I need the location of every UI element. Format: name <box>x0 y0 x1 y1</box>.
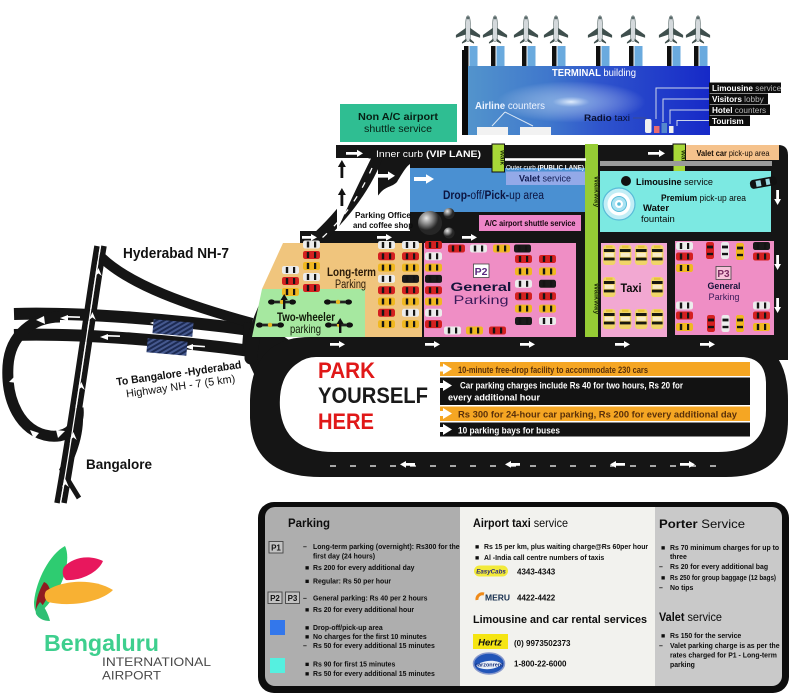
svg-text:A/C airport shuttle service: A/C airport shuttle service <box>485 219 576 228</box>
svg-text:No charges for the first 10 mi: No charges for the first 10 minutes <box>313 634 427 641</box>
svg-text:–: – <box>303 643 307 650</box>
svg-text:Drop-off/pick-up area: Drop-off/pick-up area <box>313 625 383 632</box>
svg-text:Walkway: Walkway <box>593 283 602 315</box>
svg-text:■: ■ <box>661 575 665 582</box>
svg-text:parking: parking <box>290 322 321 336</box>
svg-text:Long-term parking (overnight):: Long-term parking (overnight): Rs300 for… <box>313 544 460 551</box>
svg-text:rates charged for P1 - Long-te: rates charged for P1 - Long-term <box>670 653 777 660</box>
svg-text:MERU: MERU <box>485 593 510 603</box>
svg-text:Limousine and car rental servi: Limousine and car rental services <box>473 614 647 626</box>
svg-text:–: – <box>659 585 663 592</box>
svg-text:10-minute free-drop facility t: 10-minute free-drop facility to accommod… <box>458 365 648 376</box>
svg-text:HERE: HERE <box>318 409 374 434</box>
svg-text:(0) 9973502373: (0) 9973502373 <box>514 639 571 648</box>
svg-text:P1: P1 <box>271 544 281 553</box>
svg-text:■: ■ <box>661 545 665 552</box>
svg-text:Valet service: Valet service <box>519 174 571 184</box>
svg-text:–: – <box>659 643 663 650</box>
svg-text:carzonrent: carzonrent <box>475 663 503 669</box>
svg-text:4422-4422: 4422-4422 <box>517 594 556 603</box>
svg-text:1-800-22-6000: 1-800-22-6000 <box>514 660 567 669</box>
svg-text:P3: P3 <box>717 269 730 280</box>
svg-text:P3: P3 <box>288 594 298 603</box>
svg-text:parking: parking <box>670 662 695 669</box>
svg-text:■: ■ <box>305 565 309 572</box>
svg-text:fountain: fountain <box>641 214 675 225</box>
svg-text:P2: P2 <box>270 594 280 603</box>
svg-text:Outer curb (PUBLIC LANE): Outer curb (PUBLIC LANE) <box>506 165 584 172</box>
svg-text:YOURSELF: YOURSELF <box>318 383 428 408</box>
svg-text:Parking: Parking <box>709 292 740 303</box>
svg-text:Drop-off/Pick-up area: Drop-off/Pick-up area <box>443 190 545 202</box>
svg-text:■: ■ <box>475 544 479 551</box>
svg-text:–: – <box>303 544 307 551</box>
svg-text:Porter Service: Porter Service <box>659 517 745 531</box>
svg-text:Hyderabad NH-7: Hyderabad NH-7 <box>123 246 229 262</box>
svg-text:Limousine service: Limousine service <box>712 84 782 93</box>
svg-text:4343-4343: 4343-4343 <box>517 568 556 577</box>
svg-text:Hotel counters: Hotel counters <box>712 106 766 115</box>
svg-text:Visitors lobby: Visitors lobby <box>712 95 765 104</box>
svg-text:Tourism: Tourism <box>712 117 744 126</box>
svg-text:No tips: No tips <box>670 585 694 592</box>
svg-text:–: – <box>303 596 307 603</box>
svg-text:■: ■ <box>661 633 665 640</box>
svg-text:10 parking bays for buses: 10 parking bays for buses <box>458 425 560 436</box>
svg-text:and coffee shop: and coffee shop <box>353 221 413 230</box>
svg-text:Rs 70 minimum charges for up t: Rs 70 minimum charges for up to <box>670 545 779 552</box>
svg-text:■: ■ <box>305 634 309 641</box>
svg-text:Rs 90 for first 15 minutes: Rs 90 for first 15 minutes <box>313 662 395 669</box>
svg-text:Rs 150 for the service: Rs 150 for the service <box>670 633 741 640</box>
svg-text:Parking: Parking <box>288 516 330 530</box>
svg-text:■: ■ <box>305 625 309 632</box>
svg-text:Valet car pick-up area: Valet car pick-up area <box>697 148 770 158</box>
svg-text:three: three <box>670 554 687 561</box>
svg-text:AIRPORT: AIRPORT <box>102 671 161 683</box>
svg-text:Car parking charges include Rs: Car parking charges include Rs 40 for tw… <box>460 381 683 392</box>
svg-text:P2: P2 <box>475 266 488 278</box>
svg-text:■: ■ <box>305 607 309 614</box>
svg-text:Rs 20 for every additional hou: Rs 20 for every additional hour <box>313 607 414 614</box>
svg-text:■: ■ <box>475 555 479 562</box>
svg-text:Radio taxi: Radio taxi <box>584 113 630 124</box>
svg-text:Limousine service: Limousine service <box>636 177 713 188</box>
svg-text:Rs 15 per km, plus waiting cha: Rs 15 per km, plus waiting charge@Rs 60p… <box>484 544 648 551</box>
svg-text:every additional hour: every additional hour <box>448 393 540 404</box>
svg-text:■: ■ <box>305 579 309 586</box>
svg-text:Premium pick-up area: Premium pick-up area <box>661 193 747 204</box>
svg-text:■: ■ <box>305 671 309 678</box>
svg-text:Taxi: Taxi <box>621 283 642 295</box>
svg-text:Parking: Parking <box>335 279 366 291</box>
svg-text:Rs 20 for every additional bag: Rs 20 for every additional bag <box>670 564 768 571</box>
svg-text:Rs 200 for every additional da: Rs 200 for every additional day <box>313 565 415 572</box>
svg-text:Parking Office: Parking Office <box>355 211 412 220</box>
svg-text:shuttle service: shuttle service <box>364 123 432 135</box>
svg-text:Parking: Parking <box>454 293 509 307</box>
svg-text:■: ■ <box>305 662 309 669</box>
svg-text:Long-term: Long-term <box>327 267 376 279</box>
svg-text:General: General <box>708 281 741 292</box>
svg-text:General: General <box>451 280 512 294</box>
svg-text:Rs 50 for every additional 15: Rs 50 for every additional 15 minutes <box>313 671 435 678</box>
svg-text:Al -India call centre numbers: Al -India call centre numbers of taxis <box>484 555 604 562</box>
svg-text:Rs 50 for every additional 15: Rs 50 for every additional 15 minutes <box>313 643 435 650</box>
svg-text:EasyCabs: EasyCabs <box>476 569 506 576</box>
svg-text:Water: Water <box>643 203 669 214</box>
svg-text:Valet parking charge is as per: Valet parking charge is as per the <box>670 643 780 650</box>
svg-text:Bengaluru: Bengaluru <box>44 630 159 656</box>
svg-text:first day (24 hours): first day (24 hours) <box>313 554 375 561</box>
svg-text:INTERNATIONAL: INTERNATIONAL <box>102 657 212 669</box>
svg-text:–: – <box>659 564 663 571</box>
svg-text:Walk: Walk <box>499 150 506 165</box>
svg-text:General parking: Rs 40 per 2 h: General parking: Rs 40 per 2 hours <box>313 596 428 603</box>
svg-text:Airline counters: Airline counters <box>475 101 545 112</box>
svg-text:Bangalore: Bangalore <box>86 457 152 472</box>
svg-text:PARK: PARK <box>318 358 375 383</box>
svg-text:Regular: Rs 50 per hour: Regular: Rs 50 per hour <box>313 579 391 586</box>
svg-text:Valet service: Valet service <box>659 610 722 624</box>
svg-text:Rs 250 for group baggage (12 b: Rs 250 for group baggage (12 bags) <box>670 575 776 582</box>
svg-text:Inner curb (VIP LANE): Inner curb (VIP LANE) <box>376 149 481 160</box>
svg-text:Rs 300 for 24-hour car parking: Rs 300 for 24-hour car parking, Rs 200 f… <box>458 409 738 420</box>
svg-text:Hertz: Hertz <box>478 638 502 649</box>
svg-text:TERMINAL building: TERMINAL building <box>552 67 636 79</box>
svg-text:Non A/C airport: Non A/C airport <box>358 111 439 123</box>
svg-text:Airport taxi service: Airport taxi service <box>473 516 568 530</box>
